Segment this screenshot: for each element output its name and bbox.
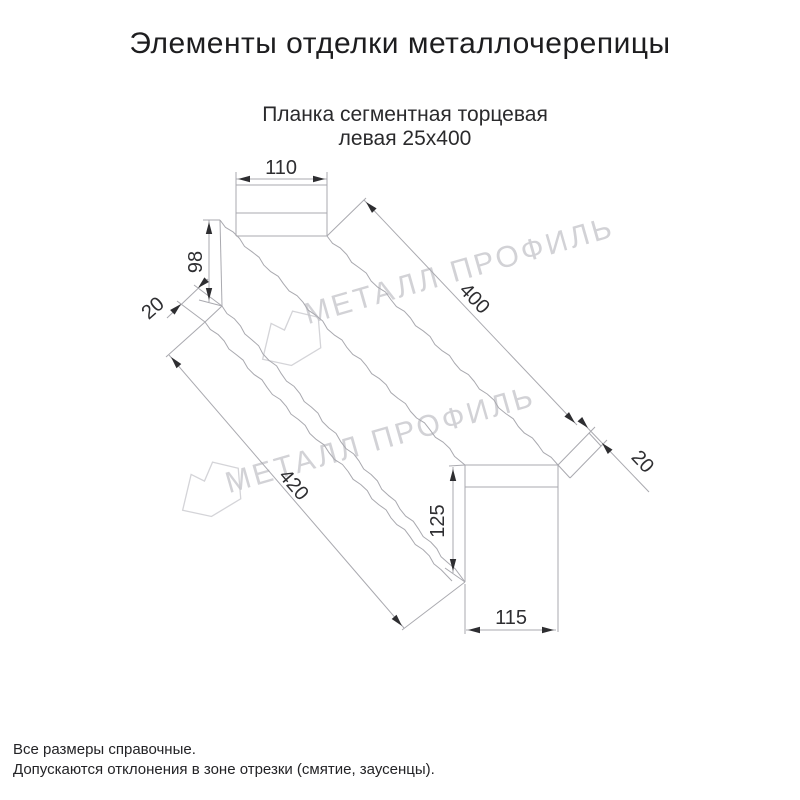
dimension-arrow-icon — [542, 627, 554, 633]
dimension-arrow-icon — [468, 627, 480, 633]
side-profile-outline — [205, 220, 222, 322]
dimension-arrow-icon — [206, 222, 212, 234]
watermark-lower: МЕТАЛЛ ПРОФИЛЬ — [172, 380, 539, 524]
footer-line-1: Все размеры справочные. — [13, 740, 435, 760]
footer-notes: Все размеры справочные. Допускаются откл… — [13, 740, 435, 780]
watermark-upper: МЕТАЛЛ ПРОФИЛЬ — [252, 211, 618, 373]
end-cap-outline — [465, 433, 601, 632]
dimension-arrow-icon — [238, 176, 250, 182]
dimension-arrow-icon — [171, 357, 181, 368]
dim-end-cap-width: 115 — [495, 607, 527, 629]
dimension-arrow-icon — [392, 615, 402, 626]
dim-end-fold: 20 — [627, 446, 658, 477]
footer-line-2: Допускаются отклонения в зоне отрезки (с… — [13, 760, 435, 780]
dimension-arrow-icon — [450, 469, 456, 481]
watermark-text: МЕТАЛЛ ПРОФИЛЬ — [301, 211, 618, 331]
dim-left-hem: 20 — [137, 293, 168, 324]
dim-top-flange-width: 110 — [265, 157, 297, 179]
dim-side-height: 98 — [185, 251, 207, 273]
dimension-arrow-icon — [313, 176, 325, 182]
top-flange-outline — [236, 185, 327, 236]
dimension-arrow-icon — [198, 277, 209, 288]
technical-drawing: МЕТАЛЛ ПРОФИЛЬ МЕТАЛЛ ПРОФИЛЬ — [0, 0, 800, 800]
dim-end-cap-height: 125 — [427, 504, 449, 537]
dimension-arrow-icon — [578, 417, 589, 428]
